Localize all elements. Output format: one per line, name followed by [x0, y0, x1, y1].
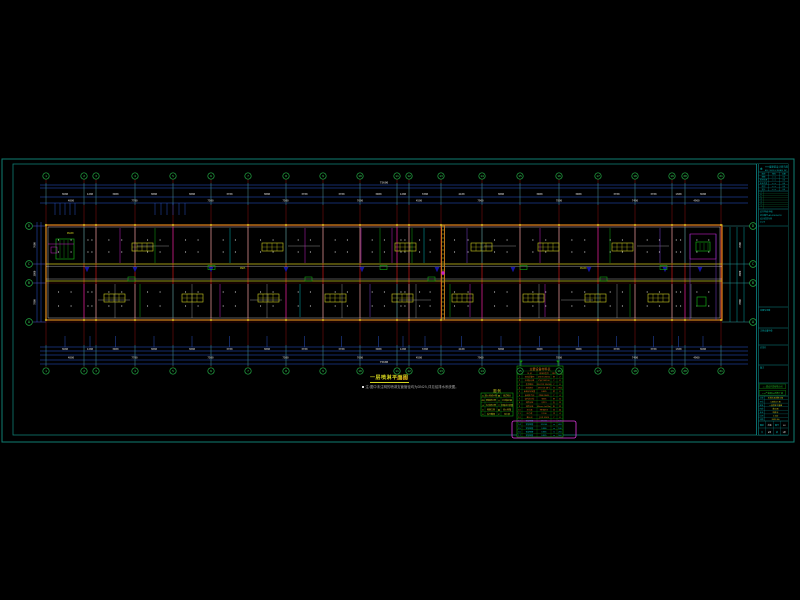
svg-text:11: 11 — [395, 174, 399, 178]
svg-text:3900: 3900 — [536, 347, 543, 351]
svg-text:4500: 4500 — [416, 199, 423, 203]
svg-text:7800: 7800 — [556, 356, 563, 360]
svg-text:3900: 3900 — [375, 347, 382, 351]
svg-text:1200: 1200 — [87, 192, 94, 196]
svg-text:ZP88 DN25: ZP88 DN25 — [539, 395, 551, 397]
svg-text:21: 21 — [719, 174, 723, 178]
svg-text:×××: ××× — [772, 179, 777, 182]
svg-text:3700: 3700 — [650, 192, 657, 196]
svg-text:9: 9 — [322, 174, 324, 178]
svg-text:DN80: DN80 — [541, 428, 547, 430]
svg-text:只: 只 — [553, 386, 555, 389]
svg-text:个: 个 — [553, 383, 555, 386]
svg-text:4: 4 — [134, 174, 136, 178]
svg-text:B: B — [28, 281, 30, 285]
svg-text:QZ19: QZ19 — [541, 402, 547, 404]
svg-text:8: 8 — [285, 174, 287, 178]
row-gridlines — [33, 226, 750, 322]
svg-text:2023.06: 2023.06 — [772, 419, 781, 421]
svg-text:10: 10 — [358, 174, 362, 178]
svg-text:3900: 3900 — [575, 347, 582, 351]
svg-text:MF/ABC5: MF/ABC5 — [540, 408, 549, 411]
svg-text:1200: 1200 — [400, 192, 407, 196]
svg-text:3800: 3800 — [739, 270, 742, 276]
svg-text:-ZP-: -ZP- — [481, 400, 485, 402]
svg-text:20: 20 — [683, 369, 687, 373]
svg-text:3600: 3600 — [700, 192, 707, 196]
svg-text:6: 6 — [210, 174, 212, 178]
svg-text:3700: 3700 — [301, 192, 308, 196]
svg-text:4900: 4900 — [693, 356, 700, 360]
drawing-frame — [2, 159, 794, 442]
svg-text:17: 17 — [596, 174, 600, 178]
svg-text:15: 15 — [518, 369, 522, 373]
svg-text:17: 17 — [596, 369, 600, 373]
top-dimensions: 3600120039003800380037003800370037003900… — [40, 180, 748, 215]
svg-text:1300: 1300 — [675, 192, 682, 196]
plan-note: 注:图中未注明的喷淋支管管径均为DN25,详见给排水系统图。 — [362, 386, 459, 389]
svg-text:×××: ××× — [772, 175, 777, 178]
svg-text:2023: 2023 — [760, 222, 766, 224]
svg-text:13: 13 — [439, 369, 443, 373]
svg-text:7600: 7600 — [739, 242, 742, 248]
svg-text:65mm L=25m: 65mm L=25m — [537, 406, 551, 408]
svg-text:DN65: DN65 — [240, 267, 246, 270]
svg-text:m: m — [553, 424, 555, 426]
svg-text:19: 19 — [670, 369, 674, 373]
svg-text:7500: 7500 — [207, 356, 214, 360]
svg-text:-J-: -J- — [482, 405, 485, 407]
svg-text:3600: 3600 — [700, 347, 707, 351]
svg-text:4800: 4800 — [68, 356, 75, 360]
svg-text:16: 16 — [557, 174, 561, 178]
svg-text:3: 3 — [95, 174, 97, 178]
svg-text:3700: 3700 — [613, 192, 620, 196]
svg-text:3800: 3800 — [151, 347, 158, 351]
svg-text:C: C — [28, 262, 30, 266]
svg-text:16: 16 — [557, 369, 561, 373]
svg-text:DN100: DN100 — [580, 267, 587, 270]
svg-text:7600: 7600 — [357, 199, 364, 203]
right-dimension-chain: 760038007800 — [722, 226, 750, 322]
cad-drawing: 3600120039003800380037003800370037003900… — [0, 0, 800, 600]
svg-text:Y-100: Y-100 — [541, 413, 547, 415]
svg-text:3700: 3700 — [226, 347, 233, 351]
svg-text:13: 13 — [439, 174, 443, 178]
svg-text:7400: 7400 — [632, 356, 639, 360]
svg-text:3700: 3700 — [226, 192, 233, 196]
svg-text:5: 5 — [172, 174, 174, 178]
svg-text:3900: 3900 — [112, 347, 119, 351]
svg-text:10: 10 — [358, 369, 362, 373]
svg-text:××省建筑设计研究院: ××省建筑设计研究院 — [765, 165, 789, 169]
svg-text:3800: 3800 — [498, 192, 505, 196]
svg-text:3800: 3800 — [264, 192, 271, 196]
svg-text:2: 2 — [83, 369, 85, 373]
svg-text:1200: 1200 — [87, 347, 94, 351]
svg-text:18: 18 — [633, 174, 637, 178]
svg-text:DN100: DN100 — [541, 424, 548, 426]
svg-text:11: 11 — [395, 369, 399, 373]
title-block: ✻××省建筑设计研究院ARCH. DESIGN & RESEARCH INST.… — [757, 164, 789, 435]
svg-text:3900: 3900 — [575, 192, 582, 196]
svg-text:个: 个 — [553, 416, 555, 419]
svg-text:DN100: DN100 — [67, 232, 74, 235]
svg-text:7900: 7900 — [477, 356, 484, 360]
svg-text:个: 个 — [553, 394, 555, 397]
svg-text:ZSFZ DN150: ZSFZ DN150 — [538, 376, 551, 378]
svg-text:XD371X DN100: XD371X DN100 — [537, 384, 553, 386]
svg-text:21: 21 — [719, 369, 723, 373]
svg-text:7400: 7400 — [632, 199, 639, 203]
svg-text:6: 6 — [210, 369, 212, 373]
svg-text:19: 19 — [670, 174, 674, 178]
svg-text:×××: ××× — [772, 182, 777, 185]
svg-text:20: 20 — [683, 174, 687, 178]
svg-text:1: 1 — [45, 369, 47, 373]
svg-text:3800: 3800 — [34, 270, 37, 276]
svg-text:D: D — [28, 224, 30, 228]
svg-text:4100: 4100 — [458, 347, 465, 351]
svg-text:7800: 7800 — [739, 299, 742, 305]
svg-text:1: 1 — [45, 174, 47, 178]
svg-text:4: 4 — [134, 369, 136, 373]
svg-text:3: 3 — [95, 369, 97, 373]
svg-text:1200: 1200 — [400, 347, 407, 351]
svg-text:7800: 7800 — [34, 299, 37, 305]
column-gridlines — [46, 180, 721, 368]
svg-text:SN65: SN65 — [541, 398, 547, 400]
building-plan: DN100DN65DN100 — [45, 224, 722, 321]
svg-text:3700: 3700 — [613, 347, 620, 351]
svg-text:3700: 3700 — [650, 347, 657, 351]
svg-text:7500: 7500 — [282, 356, 289, 360]
svg-text:14: 14 — [480, 174, 484, 178]
svg-text:12: 12 — [407, 174, 411, 178]
svg-text:7500: 7500 — [282, 199, 289, 203]
svg-text:D: D — [752, 224, 754, 228]
svg-text:主要设备材料表: 主要设备材料表 — [529, 366, 550, 371]
svg-text:7500: 7500 — [207, 199, 214, 203]
svg-text:DN65: DN65 — [541, 431, 547, 433]
svg-text:15: 15 — [518, 174, 522, 178]
svg-text:×××: ××× — [772, 188, 777, 191]
left-dimension-chain: 760038007800 — [33, 222, 46, 322]
svg-text:m: m — [553, 428, 555, 430]
svg-text:图 例: 图 例 — [493, 388, 500, 393]
svg-text:3600: 3600 — [62, 347, 69, 351]
svg-text:3300: 3300 — [422, 192, 429, 196]
svg-text:3700: 3700 — [338, 192, 345, 196]
svg-text:18: 18 — [633, 369, 637, 373]
svg-text:3800: 3800 — [151, 192, 158, 196]
svg-text:7600: 7600 — [34, 242, 37, 248]
svg-text:7800: 7800 — [556, 199, 563, 203]
svg-text:75600: 75600 — [380, 180, 389, 184]
svg-text:4500: 4500 — [416, 356, 423, 360]
svg-text:7700: 7700 — [131, 356, 138, 360]
svg-text:7: 7 — [247, 174, 249, 178]
svg-text:A: A — [28, 320, 30, 324]
cad-canvas: 3600120039003800380037003800370037003900… — [0, 0, 800, 600]
svg-text:12: 12 — [407, 369, 411, 373]
plan-note-text: 注:图中未注明的喷淋支管管径均为DN25,详见给排水系统图。 — [366, 385, 459, 389]
svg-text:DN25: DN25 — [541, 391, 547, 393]
svg-text:1:100: 1:100 — [773, 416, 779, 418]
svg-text:ZSJZ DN100: ZSJZ DN100 — [538, 380, 550, 382]
svg-text:B: B — [752, 281, 754, 285]
plan-scale: 1:100 — [396, 377, 408, 381]
svg-text:m: m — [553, 435, 555, 437]
svg-text:4100: 4100 — [458, 192, 465, 196]
svg-text:7600: 7600 — [357, 356, 364, 360]
svg-text:J11X DN25: J11X DN25 — [538, 417, 550, 419]
svg-text:▣: ▣ — [498, 408, 500, 411]
svg-text:3800: 3800 — [189, 347, 196, 351]
svg-text:8: 8 — [285, 369, 287, 373]
svg-text:7900: 7900 — [477, 199, 484, 203]
svg-text:3700: 3700 — [301, 347, 308, 351]
svg-text:3700: 3700 — [338, 347, 345, 351]
svg-text:9: 9 — [322, 369, 324, 373]
svg-text:3800: 3800 — [189, 192, 196, 196]
svg-text:3800: 3800 — [498, 347, 505, 351]
svg-text:◎: ◎ — [498, 399, 500, 402]
svg-text:4900: 4900 — [693, 199, 700, 203]
legend-table: 图 例-X-消火栓给水管●闭式喷头-ZP-喷淋给水管◎水流指示器-J-生活给水管… — [481, 388, 513, 416]
svg-text:14: 14 — [480, 369, 484, 373]
svg-text:1300: 1300 — [675, 347, 682, 351]
svg-text:A: A — [752, 320, 754, 324]
svg-text:4800: 4800 — [68, 199, 75, 203]
svg-text:个: 个 — [553, 379, 555, 382]
svg-text:75600: 75600 — [380, 360, 389, 364]
svg-text:7700: 7700 — [131, 199, 138, 203]
svg-text:×××: ××× — [772, 185, 777, 188]
note-bullet-icon — [362, 386, 364, 388]
svg-text:3300: 3300 — [422, 347, 429, 351]
svg-text:m: m — [553, 431, 555, 433]
svg-text:3600: 3600 — [62, 192, 69, 196]
svg-text:5: 5 — [172, 369, 174, 373]
svg-text:DN25: DN25 — [541, 435, 547, 437]
svg-text:C: C — [752, 262, 754, 266]
svg-text:7: 7 — [247, 369, 249, 373]
svg-text:3900: 3900 — [112, 192, 119, 196]
bottom-dimensions: 3600120039003800380037003800370037003900… — [40, 336, 748, 366]
svg-text:3900: 3900 — [536, 192, 543, 196]
svg-text:1: 1 — [761, 205, 762, 207]
svg-text:3800: 3800 — [264, 347, 271, 351]
svg-text:ZSTX15 68℃: ZSTX15 68℃ — [538, 386, 550, 389]
svg-text:3900: 3900 — [375, 192, 382, 196]
svg-text:2: 2 — [83, 174, 85, 178]
svg-text:●: ● — [498, 395, 500, 398]
